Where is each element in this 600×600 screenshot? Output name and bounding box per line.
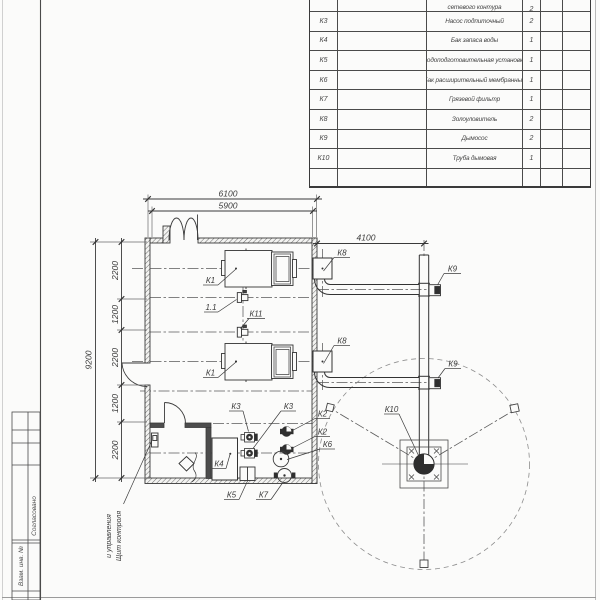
spec-name: Бак запаса воды	[426, 32, 522, 51]
boiler-symbol-2	[222, 342, 297, 383]
drawing-sheet: Согласовано Взам. инв. №	[0, 0, 600, 600]
spec-empty	[540, 0, 562, 11]
spec-pos: К10	[310, 149, 337, 168]
spec-empty	[337, 12, 426, 31]
label-k3-right: К3	[284, 402, 294, 411]
spec-empty	[337, 71, 426, 90]
spec-name: Труба дымовая	[426, 149, 522, 168]
dim-2200-b: 2200	[110, 348, 120, 368]
spec-qty: 1	[522, 90, 540, 109]
chimney-stack	[414, 453, 435, 474]
water-treatment-k5	[240, 467, 255, 481]
spec-empty	[337, 149, 426, 168]
spec-name: Дымосос	[426, 130, 522, 149]
dim-9200: 9200	[84, 350, 94, 369]
guy-anchors	[326, 403, 519, 567]
spec-qty: 1	[522, 51, 540, 70]
table-row: К7 Грязевой фильтр 1	[310, 89, 590, 109]
label-k3-left: К3	[231, 402, 241, 411]
spec-pos: К3	[310, 12, 337, 31]
spec-empty	[337, 110, 426, 129]
spec-empty	[540, 90, 562, 109]
spec-pos: К9	[310, 130, 337, 149]
stamp-agree-label: Согласовано	[31, 496, 38, 536]
valve-symbol	[237, 290, 248, 302]
chimney-guy-wires	[333, 410, 514, 561]
table-row: К9 Дымосос 2	[310, 129, 590, 149]
spec-pos: К4	[310, 32, 337, 51]
spec-empty	[562, 32, 590, 51]
label-k9-lower: К9	[448, 360, 458, 369]
spec-qty: 2	[522, 110, 540, 129]
partition-door	[165, 403, 186, 424]
table-row: К10 Труба дымовая 1	[310, 148, 590, 168]
spec-qty: 2	[522, 130, 540, 149]
spec-empty	[337, 0, 426, 11]
side-door	[122, 363, 148, 387]
label-k8-upper: К8	[337, 249, 347, 258]
spec-pos: К7	[310, 90, 337, 109]
spec-name	[426, 169, 522, 186]
spec-empty	[337, 51, 426, 70]
spec-pos: К8	[310, 110, 337, 129]
spec-empty	[540, 51, 562, 70]
spec-empty	[337, 32, 426, 51]
label-k6: К6	[323, 440, 333, 449]
spec-qty: 1	[522, 149, 540, 168]
table-row: К4 Бак запаса воды 1	[310, 31, 590, 51]
label-k1-boiler2: К1	[206, 369, 215, 378]
spec-name: Насос подпиточный	[426, 12, 522, 31]
expansion-tank-k6	[273, 451, 289, 467]
label-k8-lower: К8	[337, 337, 347, 346]
valve-symbol-k11	[237, 325, 248, 337]
label-k1-boiler1: К1	[206, 276, 215, 285]
spec-pos: К5	[310, 51, 337, 70]
spec-empty	[562, 90, 590, 109]
label-k10: К10	[385, 405, 399, 414]
dim-1200-b: 1200	[110, 394, 120, 413]
spec-empty	[562, 149, 590, 168]
network-pump-k2	[280, 426, 294, 436]
spec-name: сетевого контура	[426, 0, 522, 11]
table-row: К5 Водоподготовительная установка 1	[310, 50, 590, 70]
control-panel-note-line2: и управления	[106, 514, 113, 558]
label-k2-upper: К2	[318, 410, 328, 419]
spec-empty	[337, 90, 426, 109]
spec-empty	[562, 169, 590, 186]
spec-qty: 1	[522, 71, 540, 90]
spec-empty	[562, 110, 590, 129]
smoke-exhausters-k9	[429, 285, 441, 389]
spec-empty	[337, 130, 426, 149]
table-row: К6 Бак расширительный мембранный 1	[310, 70, 590, 90]
spec-pos	[310, 169, 337, 186]
spec-empty	[540, 71, 562, 90]
label-k9-upper: К9	[448, 265, 458, 274]
spec-empty	[540, 149, 562, 168]
spec-qty: 2	[522, 12, 540, 31]
spec-name: Грязевой фильтр	[426, 90, 522, 109]
spec-qty: 2	[522, 0, 540, 11]
specification-table: К2 сетевого контура 2 К3 Насос подпиточн…	[309, 0, 591, 188]
table-row	[310, 168, 590, 186]
label-k4: К4	[214, 460, 224, 469]
partition-walls	[150, 423, 211, 479]
table-row: К3 Насос подпиточный 2	[310, 11, 590, 31]
label-k11: К11	[249, 310, 262, 319]
spec-empty	[540, 32, 562, 51]
spec-empty	[540, 130, 562, 149]
entrance-double-door	[169, 215, 198, 241]
spec-empty	[540, 110, 562, 129]
label-k7: К7	[259, 491, 269, 500]
control-panel-note-line1: Щит контроля	[116, 511, 123, 562]
table-row: К2 сетевого контура 2	[310, 0, 590, 11]
spec-name: Золоуловитель	[426, 110, 522, 129]
spec-pos: К6	[310, 71, 337, 90]
spec-qty: 1	[522, 32, 540, 51]
dim-5900: 5900	[219, 201, 238, 211]
spec-empty	[562, 0, 590, 11]
dim-1200-a: 1200	[110, 305, 120, 324]
spec-empty	[540, 169, 562, 186]
spec-empty	[337, 169, 426, 186]
makeup-pump-k3-2	[241, 449, 257, 459]
table-row: К8 Золоуловитель 2	[310, 109, 590, 129]
dim-2200-a: 2200	[110, 261, 120, 281]
dim-4100: 4100	[357, 233, 376, 243]
spec-name: Водоподготовительная установка	[426, 51, 522, 70]
spec-empty	[562, 51, 590, 70]
dimension-extension-lines	[90, 195, 317, 479]
label-valve-1-1: 1.1	[205, 303, 216, 312]
spec-qty	[522, 169, 540, 186]
dim-2200-c: 2200	[110, 440, 120, 460]
dim-6100: 6100	[219, 189, 238, 199]
spec-empty	[562, 12, 590, 31]
spec-empty	[562, 130, 590, 149]
spec-pos: К2	[310, 0, 337, 11]
label-k5: К5	[227, 491, 237, 500]
boiler-symbol	[222, 249, 297, 290]
label-k2-lower: К2	[318, 428, 328, 437]
spec-empty	[562, 71, 590, 90]
makeup-pump-k3	[241, 433, 257, 443]
stamp-inv-label: Взам. инв. №	[18, 546, 25, 586]
control-panel-box	[152, 433, 159, 447]
spec-empty	[540, 12, 562, 31]
spec-name: Бак расширительный мембранный	[426, 71, 522, 90]
